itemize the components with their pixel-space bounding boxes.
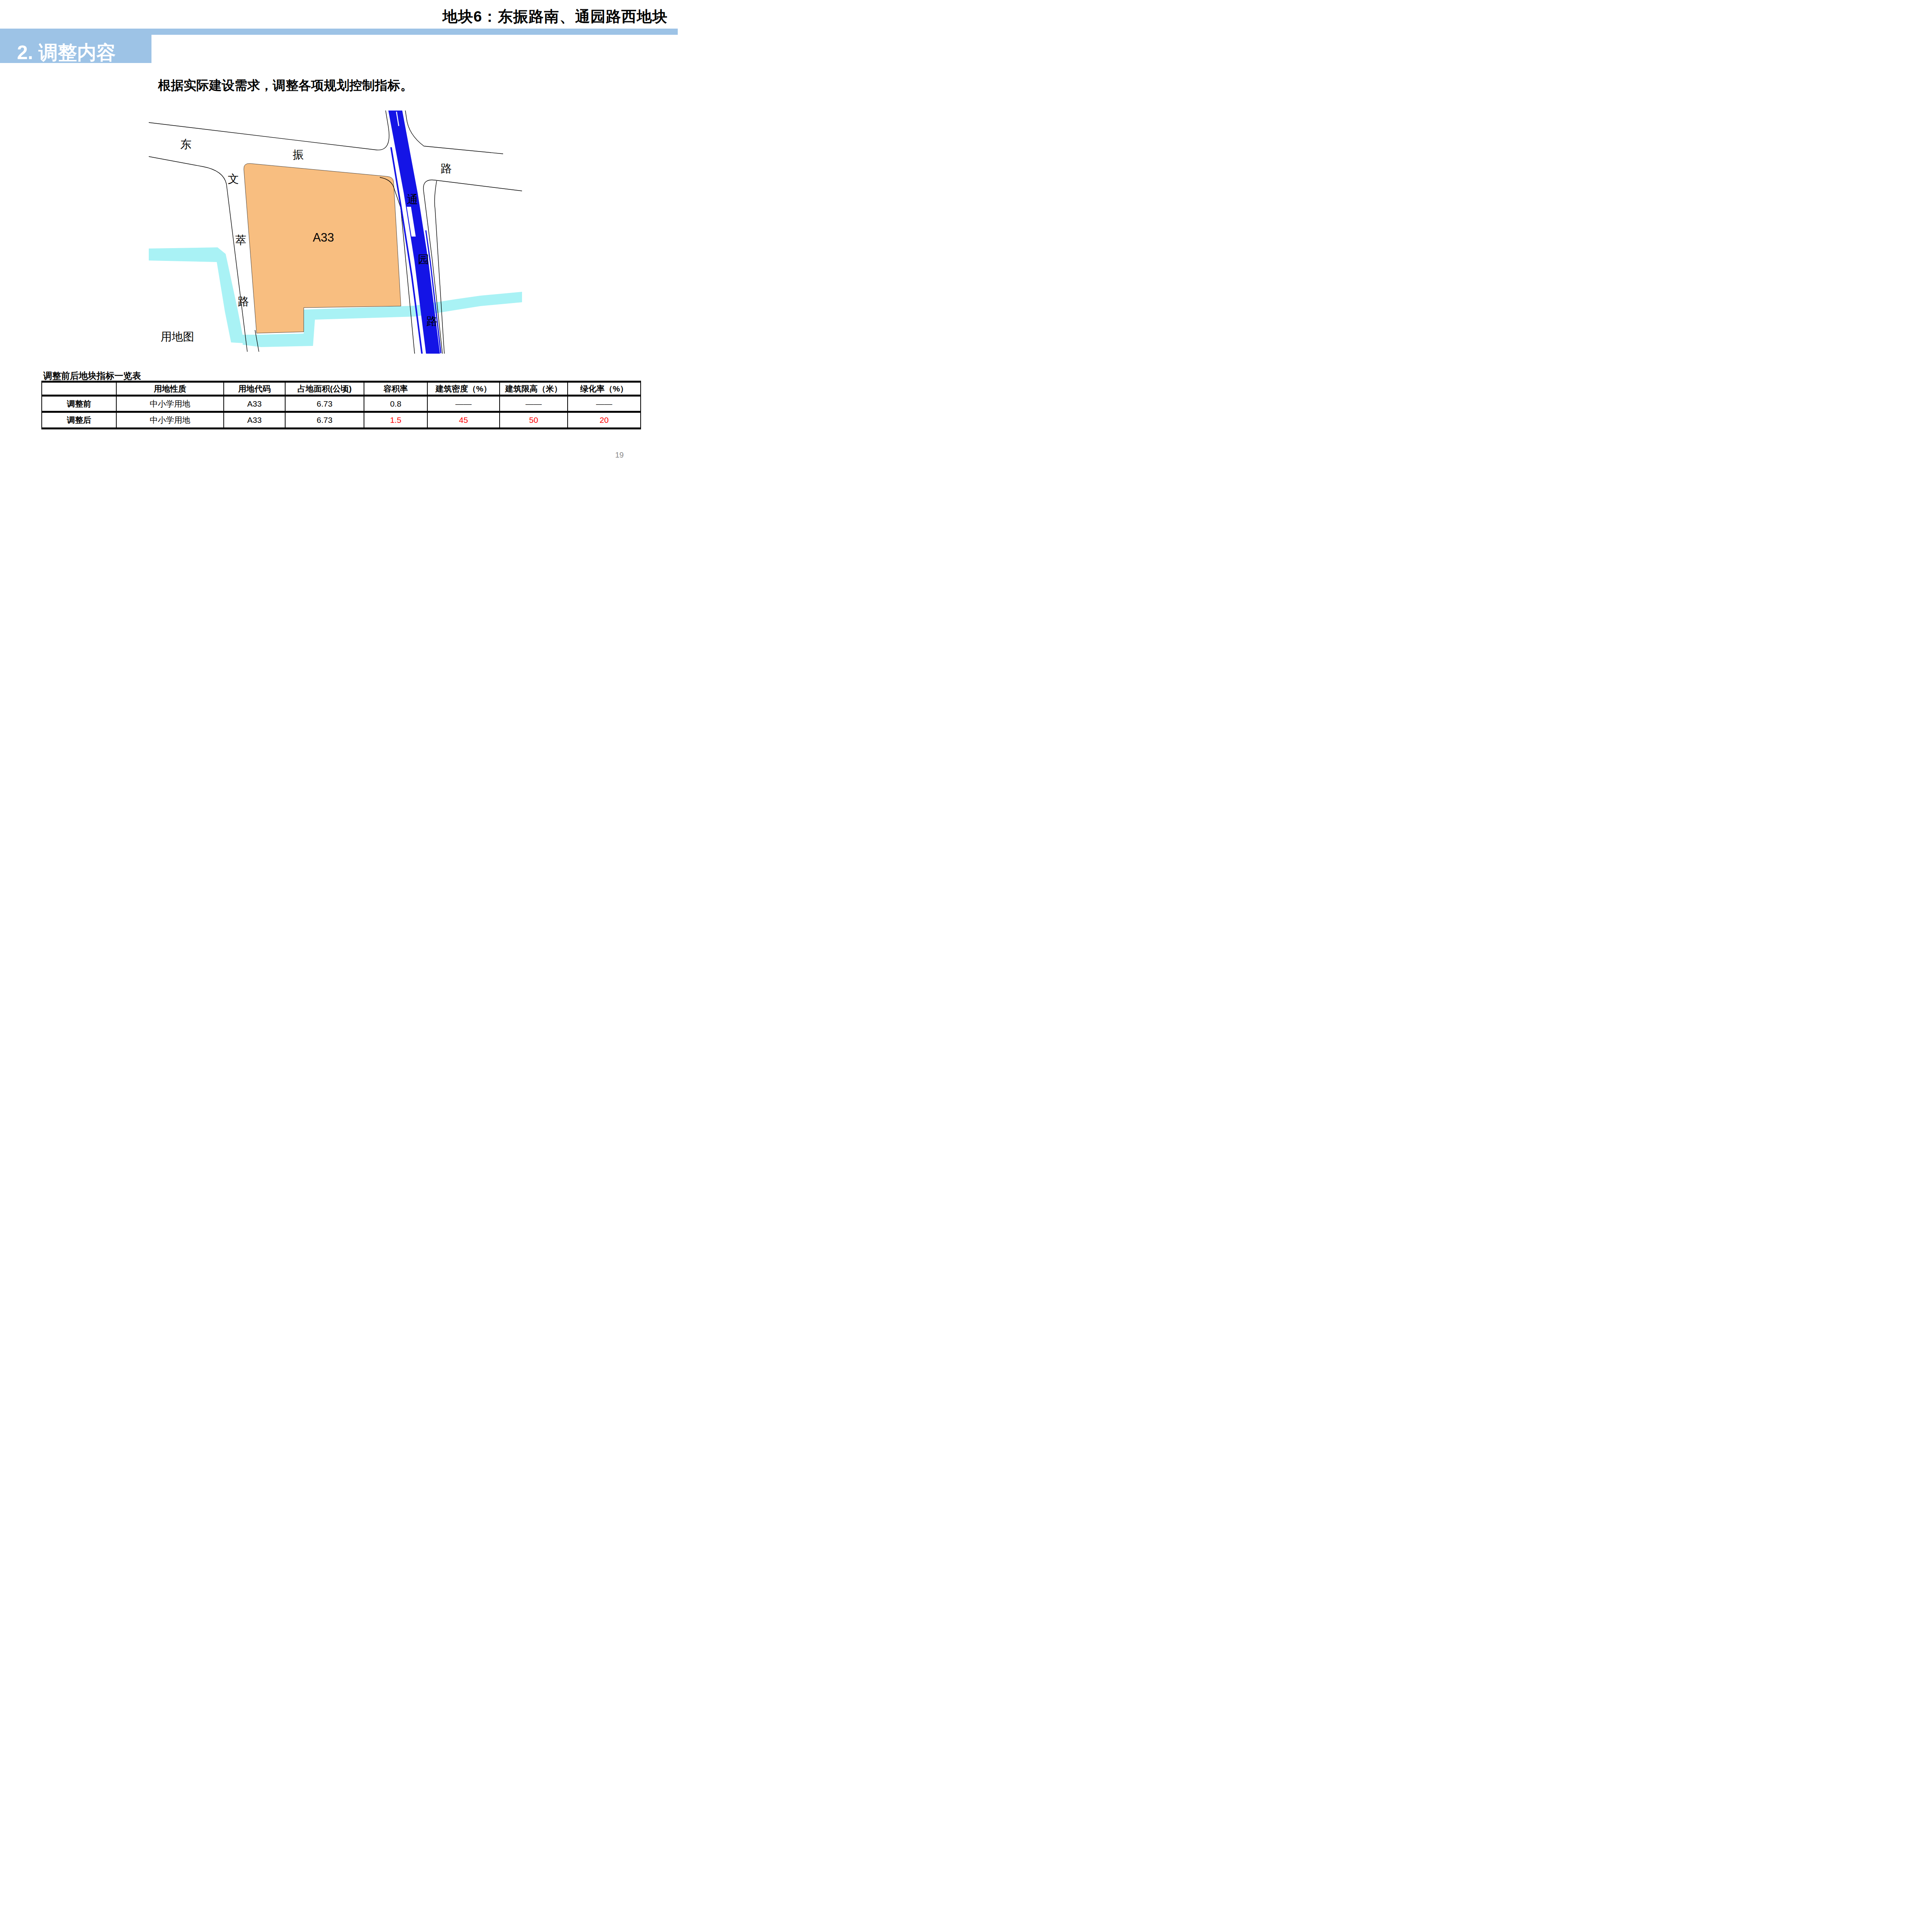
body-paragraph: 根据实际建设需求，调整各项规划控制指标。 [158,77,413,94]
header-cell-height-limit: 建筑限高（米） [500,382,568,396]
road-tongyuan-left-line-top [377,111,389,150]
row-after-area: 6.73 [285,412,364,429]
table-title: 调整前后地块指标一览表 [43,370,141,382]
road-label-wen: 文 [228,173,239,185]
road-dongzhen-upper-edge-east [405,111,503,154]
land-use-map: 东 振 路 文 萃 路 通 园 路 A33 用地图 [149,111,523,354]
row-before-green-rate: —— [568,396,641,412]
road-label-zhen: 振 [293,148,304,161]
row-after-height-limit: 50 [500,412,568,429]
row-before-far: 0.8 [364,396,427,412]
road-label-cui: 萃 [235,234,247,246]
slide-page: 地块6：东振路南、通园路西地块 2. 调整内容 根据实际建设需求，调整各项规划控… [0,0,678,479]
parcel-label-a33: A33 [313,231,334,244]
indicator-table: 用地性质 用地代码 占地面积(公顷) 容积率 建筑密度（%） 建筑限高（米） 绿… [41,381,641,429]
road-label-dong: 东 [180,138,192,150]
header-cell-far: 容积率 [364,382,427,396]
map-caption: 用地图 [161,330,194,343]
header-cell-green-rate: 绿化率（%） [568,382,641,396]
row-after-land-code: A33 [224,412,285,429]
header-cell-land-code: 用地代码 [224,382,285,396]
row-before-area: 6.73 [285,396,364,412]
row-after-green-rate: 20 [568,412,641,429]
row-after-far: 1.5 [364,412,427,429]
page-number: 19 [615,451,624,460]
row-before-density: —— [427,396,500,412]
slide-title: 地块6：东振路南、通园路西地块 [442,6,668,27]
header-cell-blank [42,382,116,396]
row-before-label: 调整前 [42,396,116,412]
row-before-land-use: 中小学用地 [116,396,224,412]
row-after-density: 45 [427,412,500,429]
road-label-tong: 通 [407,193,418,206]
row-after-label: 调整后 [42,412,116,429]
header-cell-area: 占地面积(公顷) [285,382,364,396]
row-after-land-use: 中小学用地 [116,412,224,429]
section-title: 2. 调整内容 [17,43,116,62]
header-cell-land-use: 用地性质 [116,382,224,396]
road-label-lu-tongyuan: 路 [427,315,438,327]
header-cell-density: 建筑密度（%） [427,382,500,396]
row-before-land-code: A33 [224,396,285,412]
road-label-yuan: 园 [418,253,429,266]
road-label-lu-dongzhen: 路 [441,162,452,175]
road-label-lu-wencui: 路 [238,295,249,308]
table-row-after: 调整后 中小学用地 A33 6.73 1.5 45 50 20 [42,412,641,429]
table-row-before: 调整前 中小学用地 A33 6.73 0.8 —— —— —— [42,396,641,412]
section-title-box: 2. 调整内容 [0,29,151,63]
table-header-row: 用地性质 用地代码 占地面积(公顷) 容积率 建筑密度（%） 建筑限高（米） 绿… [42,382,641,396]
water-left-channel [149,247,244,343]
row-before-height-limit: —— [500,396,568,412]
